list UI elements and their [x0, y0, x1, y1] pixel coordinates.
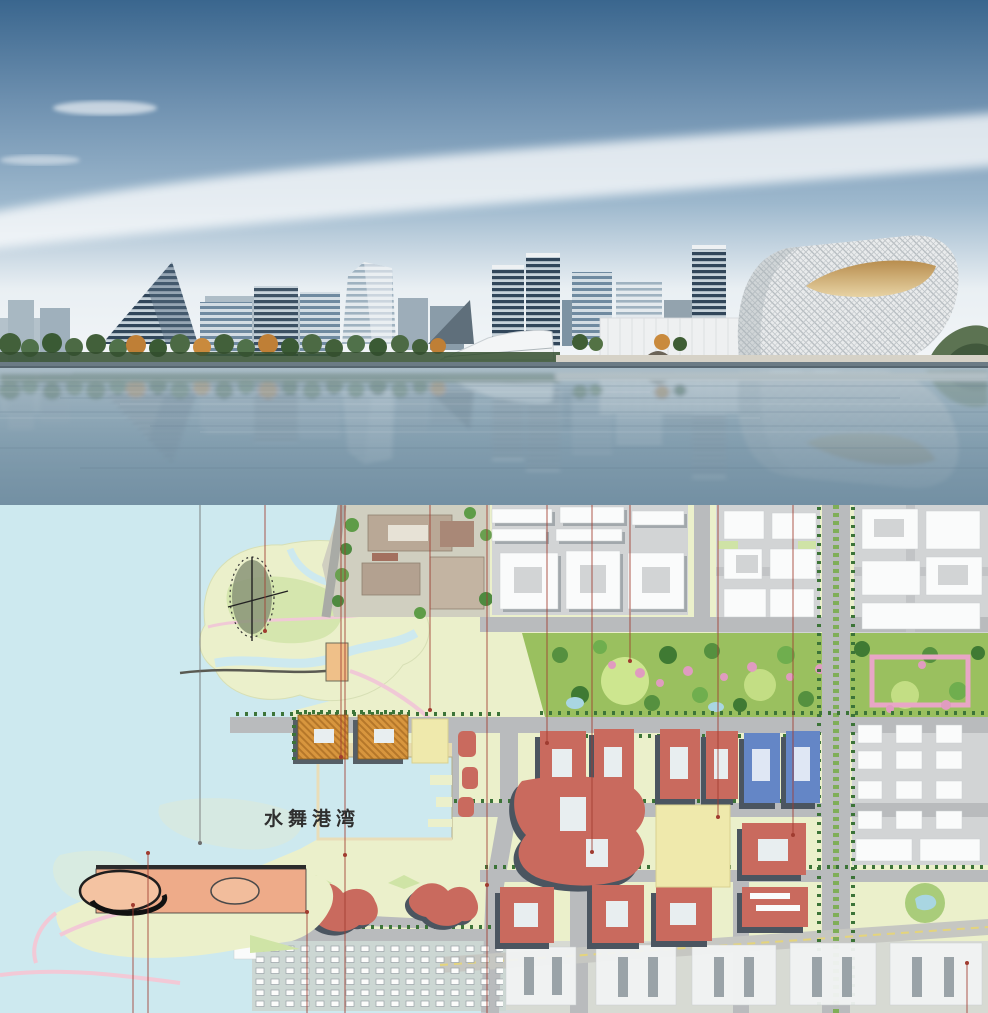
- leader-dot: [716, 815, 720, 819]
- leader-dot: [343, 853, 347, 857]
- harbor-label: 水舞港湾: [264, 807, 360, 830]
- leader-dot: [545, 741, 549, 745]
- presentation-board: 水舞港湾: [0, 0, 988, 1013]
- water-reflection: [0, 368, 988, 505]
- leader-dot: [791, 833, 795, 837]
- leader-dot: [590, 850, 594, 854]
- latticed-dome-hall: [738, 235, 959, 366]
- leader-dot: [263, 629, 267, 633]
- leader-dot: [305, 910, 309, 914]
- plaza-circle: [211, 878, 259, 904]
- leader-dot: [965, 961, 969, 965]
- campus-block: [322, 505, 493, 619]
- leader-dot: [428, 708, 432, 712]
- faceted-tower: [342, 262, 396, 344]
- leader-dot: [628, 659, 632, 663]
- leader-dot: [146, 851, 150, 855]
- small-units-grid: [255, 941, 503, 1007]
- leader-dot: [339, 755, 343, 759]
- leader-dot: [485, 883, 489, 887]
- rendering-panel: [0, 0, 988, 505]
- vacant-plot: [412, 719, 448, 763]
- leader-dot: [131, 903, 135, 907]
- leader-dot: [198, 841, 202, 845]
- masterplan-panel: 水舞港湾: [0, 505, 988, 1013]
